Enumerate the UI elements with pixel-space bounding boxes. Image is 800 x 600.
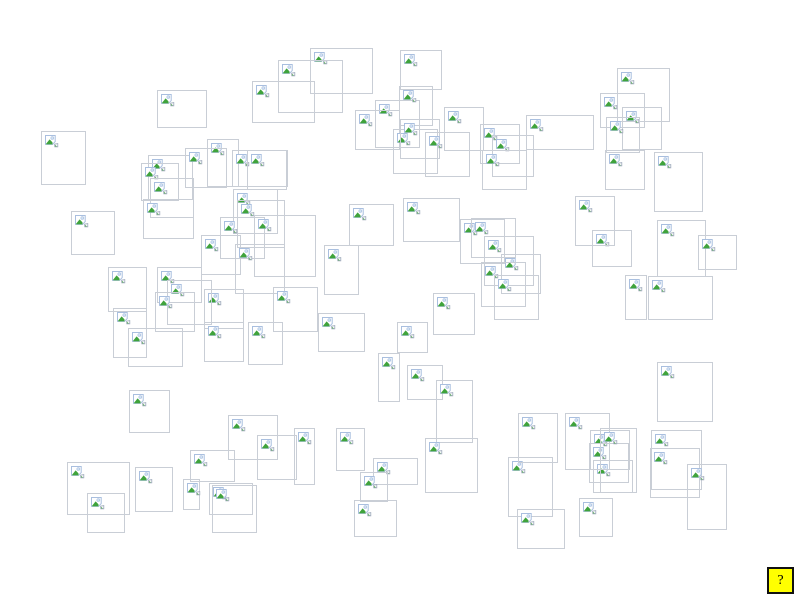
broken-image-box [155, 292, 195, 332]
broken-image-box [625, 275, 647, 320]
broken-image-icon [428, 441, 444, 457]
broken-image-icon [608, 153, 624, 169]
broken-image-icon [578, 199, 594, 215]
broken-image-box [403, 198, 460, 242]
broken-image-icon [215, 488, 231, 504]
broken-image-box [698, 235, 737, 270]
broken-image-icon [297, 431, 313, 447]
broken-image-icon [487, 239, 503, 255]
broken-image-icon [447, 110, 463, 126]
broken-image-icon [485, 153, 501, 169]
broken-image-box [579, 498, 613, 537]
broken-image-icon [327, 248, 343, 264]
broken-image-box [128, 328, 183, 367]
broken-image-icon [363, 475, 379, 491]
broken-image-icon [276, 290, 292, 306]
broken-image-box [518, 413, 558, 463]
broken-image-box [425, 132, 470, 177]
broken-image-icon [428, 135, 444, 151]
broken-image-box [248, 322, 283, 365]
broken-image-box [648, 276, 713, 320]
help-button-label: ? [777, 573, 783, 589]
broken-image-box [252, 81, 315, 123]
broken-image-box [397, 322, 428, 353]
broken-image-icon [207, 325, 223, 341]
broken-image-icon [160, 93, 176, 109]
broken-image-box [108, 267, 147, 312]
broken-image-icon [439, 383, 455, 399]
broken-image-icon [660, 365, 676, 381]
broken-image-icon [250, 153, 266, 169]
broken-image-icon [603, 96, 619, 112]
broken-image-box [247, 150, 287, 190]
broken-image-box [378, 353, 400, 402]
broken-image-icon [352, 207, 368, 223]
broken-image-icon [260, 438, 276, 454]
broken-image-icon [521, 416, 537, 432]
help-button[interactable]: ? [767, 567, 794, 594]
broken-image-box [526, 115, 594, 150]
broken-image-box [324, 245, 359, 295]
broken-image-icon [90, 496, 106, 512]
broken-image-box [87, 493, 125, 533]
broken-image-icon [403, 122, 419, 138]
broken-image-icon [357, 503, 373, 519]
broken-image-box [349, 204, 394, 246]
broken-image-box [436, 380, 473, 443]
broken-image-icon [186, 482, 202, 498]
broken-image-box [354, 500, 397, 537]
broken-image-box [425, 438, 478, 493]
broken-image-icon [620, 71, 636, 87]
broken-image-icon [568, 416, 584, 432]
broken-image-icon [146, 202, 162, 218]
broken-image-box [605, 150, 645, 190]
broken-image-icon [158, 295, 174, 311]
broken-image-icon [651, 279, 667, 295]
broken-image-box [336, 428, 365, 471]
broken-image-box [687, 464, 727, 530]
broken-image-box [185, 148, 227, 188]
broken-image-box [400, 50, 442, 90]
broken-image-icon [628, 278, 644, 294]
broken-image-icon [255, 84, 271, 100]
broken-image-box [517, 509, 565, 549]
broken-image-icon [520, 512, 536, 528]
broken-image-box [190, 450, 235, 482]
broken-image-box [212, 485, 257, 533]
broken-image-box [143, 199, 194, 239]
broken-image-icon [474, 221, 490, 237]
broken-image-icon [497, 278, 513, 294]
broken-image-icon [529, 118, 545, 134]
broken-image-icon [603, 431, 619, 447]
broken-image-box [157, 90, 207, 128]
broken-image-icon [402, 89, 418, 105]
broken-image-icon [358, 113, 374, 129]
broken-image-icon [654, 433, 670, 449]
broken-image-icon [44, 134, 60, 150]
broken-image-icon [657, 155, 673, 171]
broken-image-icon [223, 220, 239, 236]
broken-image-icon [257, 218, 273, 234]
broken-image-icon [132, 393, 148, 409]
broken-image-box [360, 472, 388, 502]
broken-image-icon [436, 296, 452, 312]
broken-image-icon [193, 453, 209, 469]
broken-image-box [508, 457, 553, 517]
broken-image-box [204, 322, 244, 362]
broken-image-icon [609, 120, 625, 136]
broken-image-box [71, 211, 115, 255]
broken-image-box [129, 390, 170, 433]
broken-image-icon [653, 451, 669, 467]
broken-image-box [433, 293, 475, 335]
broken-image-box [494, 275, 539, 320]
broken-image-icon [410, 368, 426, 384]
broken-image-icon [701, 238, 717, 254]
broken-image-icon [131, 331, 147, 347]
broken-image-icon [116, 311, 132, 327]
broken-image-box [654, 152, 703, 212]
broken-image-box [135, 467, 173, 512]
broken-image-icon [406, 201, 422, 217]
broken-image-icon [251, 325, 267, 341]
broken-image-icon [111, 270, 127, 286]
broken-image-box [183, 479, 200, 510]
broken-image-icon [138, 470, 154, 486]
broken-image-box [257, 435, 297, 480]
broken-image-icon [582, 501, 598, 517]
broken-image-icon [204, 238, 220, 254]
broken-image-icon [660, 223, 676, 239]
broken-image-box [657, 362, 713, 422]
page-canvas: ? [0, 0, 800, 600]
broken-image-icon [339, 431, 355, 447]
broken-image-box [600, 428, 637, 493]
broken-image-icon [74, 214, 90, 230]
broken-image-box [294, 428, 315, 485]
broken-image-box [606, 117, 640, 153]
broken-image-box [318, 313, 365, 352]
broken-image-icon [281, 63, 297, 79]
broken-image-icon [70, 465, 86, 481]
broken-image-icon [690, 467, 706, 483]
broken-image-icon [321, 316, 337, 332]
broken-image-icon [238, 247, 254, 263]
broken-image-icon [188, 151, 204, 167]
broken-image-box [575, 196, 615, 246]
broken-image-box [41, 131, 86, 185]
broken-image-icon [400, 325, 416, 341]
broken-image-icon [381, 356, 397, 372]
broken-image-icon [153, 181, 169, 197]
broken-image-box [482, 150, 527, 190]
broken-image-icon [231, 418, 247, 434]
broken-image-icon [403, 53, 419, 69]
